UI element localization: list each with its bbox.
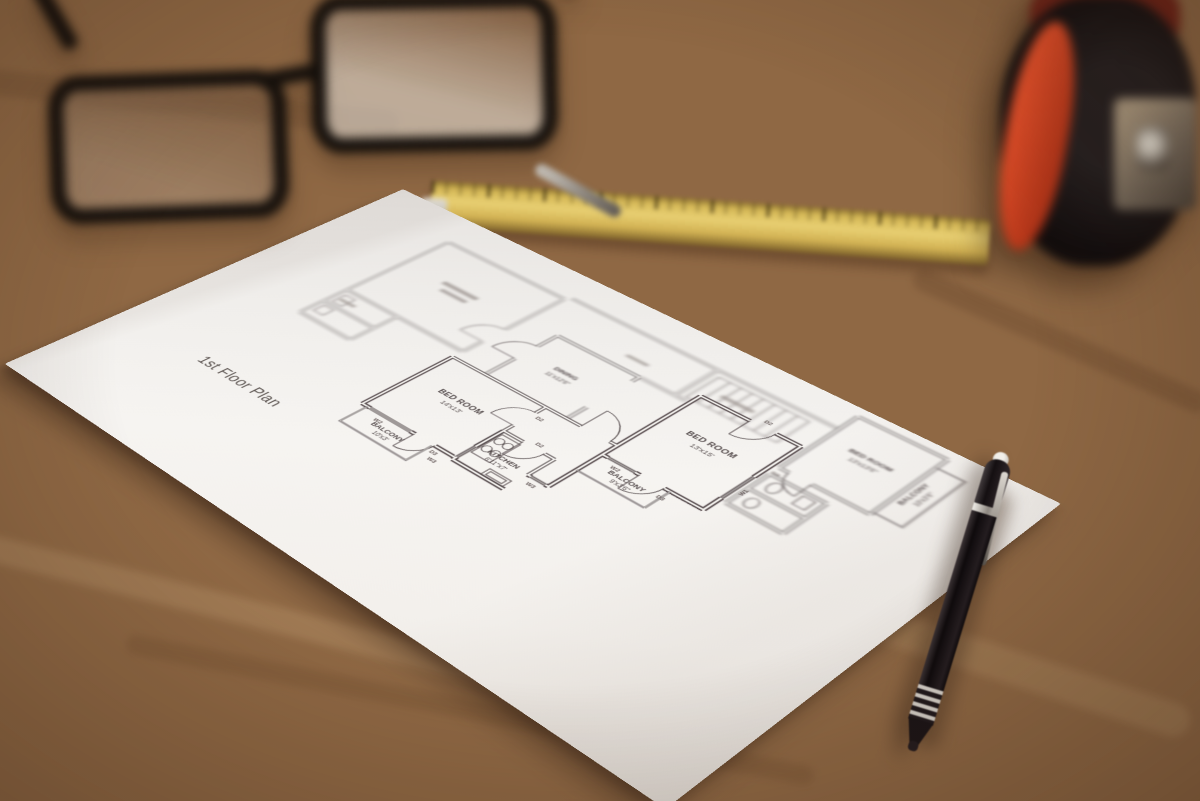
room-dims-bedroom-ne: 13'x13'6" (846, 457, 880, 475)
window-label-w1: W1 (738, 489, 752, 498)
glasses-bridge (256, 64, 316, 89)
room-dims-bedroom-w: 14'x13' (438, 399, 466, 415)
room-dims-kitchen: 6'11"x7' (482, 457, 509, 472)
plan-title: 1st Floor Plan (193, 354, 287, 409)
glasses-left-lens (47, 69, 290, 225)
door-label-d2: D2 (533, 442, 545, 449)
door-label-d3: D3 (768, 471, 781, 478)
window-label-w3: W3 (523, 482, 537, 490)
room-label-bedroom-e: BED ROOM (683, 430, 740, 460)
tape-measure-clip (1114, 98, 1196, 210)
door-label-d2: D2 (762, 420, 774, 427)
tape-measure (992, 0, 1200, 290)
room-label-balcony-ne: BALCONY (894, 482, 932, 507)
room-label-bedroom-w: BED ROOM (435, 388, 486, 416)
glasses-left-temple (30, 0, 80, 52)
room-label-kitchen: KITCHEN (485, 448, 523, 470)
room-label-bedroom-ne: BED ROOM (846, 447, 896, 473)
window-label-w3: W3 (424, 457, 437, 465)
door-label-d3: D3 (653, 495, 666, 502)
room-label-balcony-e: BALCONY (605, 469, 649, 494)
room-dims-dining: 11'x12'6" (543, 371, 572, 387)
door-label-d2: D2 (533, 416, 545, 423)
room-label-balcony-w: BALCONY (368, 421, 408, 444)
door-label-d3: D3 (426, 450, 438, 457)
room-label-dining: DINING (551, 366, 581, 382)
room-dims-balcony-w: 10'x3' (369, 430, 390, 442)
plan-dining-room: DINING 11'x12'6" (462, 324, 639, 418)
room-dims-bedroom-e: 13'x15' (687, 442, 718, 459)
eyeglasses (26, 0, 594, 234)
room-dims-balcony-ne: 10'x3'6" (912, 491, 938, 508)
window-label-w2: W2 (608, 465, 622, 473)
photo-scene: DINING 11'x12'6" BED ROOM 13'x13'6" BALC… (0, 0, 1200, 801)
glasses-right-lens (310, 0, 559, 154)
window-label-w2: W2 (371, 418, 384, 425)
room-dims-balcony-e: 9'x3'6" (607, 479, 633, 494)
